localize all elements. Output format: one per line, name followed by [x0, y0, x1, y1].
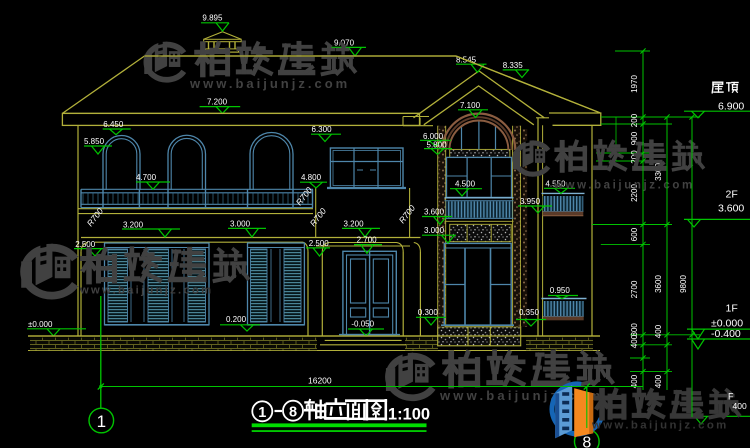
svg-text:-0.400: -0.400 — [711, 328, 741, 340]
svg-text:400: 400 — [630, 334, 639, 348]
svg-text:www.baijunjz.com: www.baijunjz.com — [591, 420, 729, 432]
svg-text:1: 1 — [258, 405, 266, 421]
svg-text:F: F — [728, 392, 734, 402]
svg-text:0.950: 0.950 — [550, 286, 571, 295]
svg-text:0.200: 0.200 — [226, 315, 247, 324]
svg-text:3.600: 3.600 — [718, 203, 744, 215]
svg-text:400: 400 — [654, 324, 663, 338]
svg-text:3600: 3600 — [654, 275, 663, 293]
svg-text:7.200: 7.200 — [207, 98, 228, 107]
svg-text:200: 200 — [630, 113, 639, 127]
svg-text:1: 1 — [97, 412, 106, 431]
svg-text:8: 8 — [289, 405, 297, 421]
svg-text:3.200: 3.200 — [344, 220, 365, 229]
svg-text:2700: 2700 — [630, 280, 639, 298]
svg-text:2F: 2F — [726, 189, 738, 201]
svg-text:400: 400 — [733, 401, 747, 411]
svg-text:3.000: 3.000 — [424, 226, 445, 235]
svg-text:16200: 16200 — [308, 376, 332, 386]
svg-text:www.baijunjz.com: www.baijunjz.com — [79, 285, 213, 297]
svg-text:8.335: 8.335 — [503, 61, 524, 70]
svg-text:400: 400 — [654, 374, 663, 388]
svg-text:4.800: 4.800 — [301, 173, 322, 182]
svg-text:6.450: 6.450 — [103, 120, 124, 129]
svg-text:6.300: 6.300 — [312, 125, 333, 134]
svg-text:5.800: 5.800 — [427, 140, 448, 149]
svg-text:3.950: 3.950 — [520, 197, 541, 206]
svg-text:www.baijunjz.com: www.baijunjz.com — [553, 180, 695, 192]
svg-text:0.300: 0.300 — [418, 308, 439, 317]
svg-text:9.895: 9.895 — [202, 14, 223, 23]
svg-text:0.350: 0.350 — [519, 308, 540, 317]
svg-text:3.200: 3.200 — [123, 220, 144, 229]
svg-text:1970: 1970 — [630, 75, 639, 93]
svg-text:9800: 9800 — [679, 275, 688, 293]
svg-text:4.500: 4.500 — [455, 180, 476, 189]
svg-text:8: 8 — [582, 435, 591, 448]
svg-text:600: 600 — [630, 227, 639, 241]
svg-text:5.850: 5.850 — [84, 137, 105, 146]
svg-text:3.000: 3.000 — [230, 220, 251, 229]
svg-text:2.500: 2.500 — [309, 239, 330, 248]
svg-text:2.500: 2.500 — [75, 240, 96, 249]
svg-text:7.100: 7.100 — [460, 101, 481, 110]
svg-text:1F: 1F — [726, 303, 738, 315]
svg-text:±0.000: ±0.000 — [28, 320, 53, 329]
svg-text:1:100: 1:100 — [388, 406, 430, 424]
svg-text:3.600: 3.600 — [424, 208, 445, 217]
svg-text:300: 300 — [630, 323, 639, 337]
svg-text:4.700: 4.700 — [136, 173, 157, 182]
svg-text:6.900: 6.900 — [718, 101, 744, 113]
svg-text:2.700: 2.700 — [357, 236, 378, 245]
svg-text:-0.050: -0.050 — [351, 320, 374, 329]
svg-text:www.baijunjz.com: www.baijunjz.com — [189, 76, 350, 91]
